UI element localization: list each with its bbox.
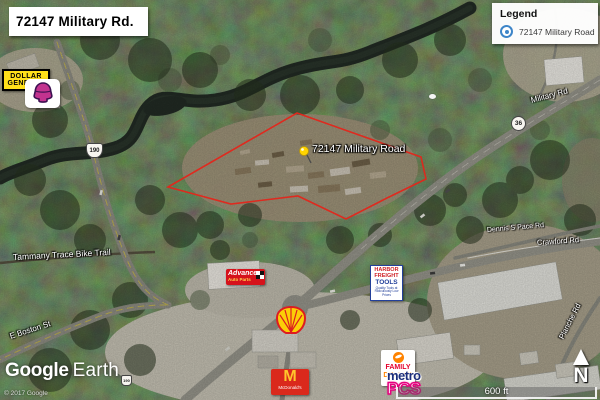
harbor-tagline: Quality Tools at Ridiculously Low Prices: [371, 286, 402, 297]
map-title: 72147 Military Rd.: [9, 7, 148, 36]
pin-label: 72147 Military Road: [312, 143, 405, 155]
satellite-map[interactable]: [0, 0, 600, 400]
watermark-google: Google: [5, 360, 69, 381]
legend-marker-icon: [500, 25, 513, 38]
legend-item: 72147 Military Road: [500, 25, 598, 38]
taco-bell-icon: [31, 82, 55, 105]
shell-pecten-icon: [276, 306, 306, 334]
poi-marker-dot: [429, 94, 436, 99]
legend-item-label: 72147 Military Road: [519, 27, 595, 37]
route-shield-190-small: 190: [121, 375, 132, 386]
shell-logo: [276, 306, 306, 334]
family-dollar-sun-icon: [393, 352, 404, 363]
copyright-text: © 2017 Google: [4, 390, 48, 397]
harbor-freight-logo: HARBOR FREIGHT TOOLS Quality Tools at Ri…: [370, 265, 403, 301]
north-indicator: N: [566, 349, 596, 387]
golden-arches-icon: M: [271, 369, 309, 385]
route-shield-36: 36: [511, 116, 526, 131]
mcdonalds-logo: M McDonald's: [271, 369, 309, 395]
harbor-line3: TOOLS: [371, 279, 402, 286]
google-earth-watermark: GoogleEarth: [5, 360, 119, 382]
legend-panel: Legend 72147 Military Road: [492, 3, 598, 44]
grain-overlay: [0, 0, 600, 400]
taco-bell-logo: [25, 79, 60, 108]
watermark-earth: Earth: [73, 360, 119, 381]
legend-heading: Legend: [500, 8, 598, 20]
google-earth-viewport: 72147 Military Road Military Rd Tammany …: [0, 0, 600, 400]
scale-bar: 600 ft: [396, 387, 597, 399]
mcdonalds-name: McDonald's: [271, 385, 309, 390]
advance-auto-parts-logo: Advance Auto Parts: [226, 269, 265, 285]
north-label: N: [566, 365, 596, 387]
north-arrow-icon: [573, 349, 589, 365]
checkered-flag-icon: [256, 271, 264, 279]
scale-label: 600 ft: [398, 387, 595, 397]
route-shield-190: 190: [86, 143, 103, 158]
